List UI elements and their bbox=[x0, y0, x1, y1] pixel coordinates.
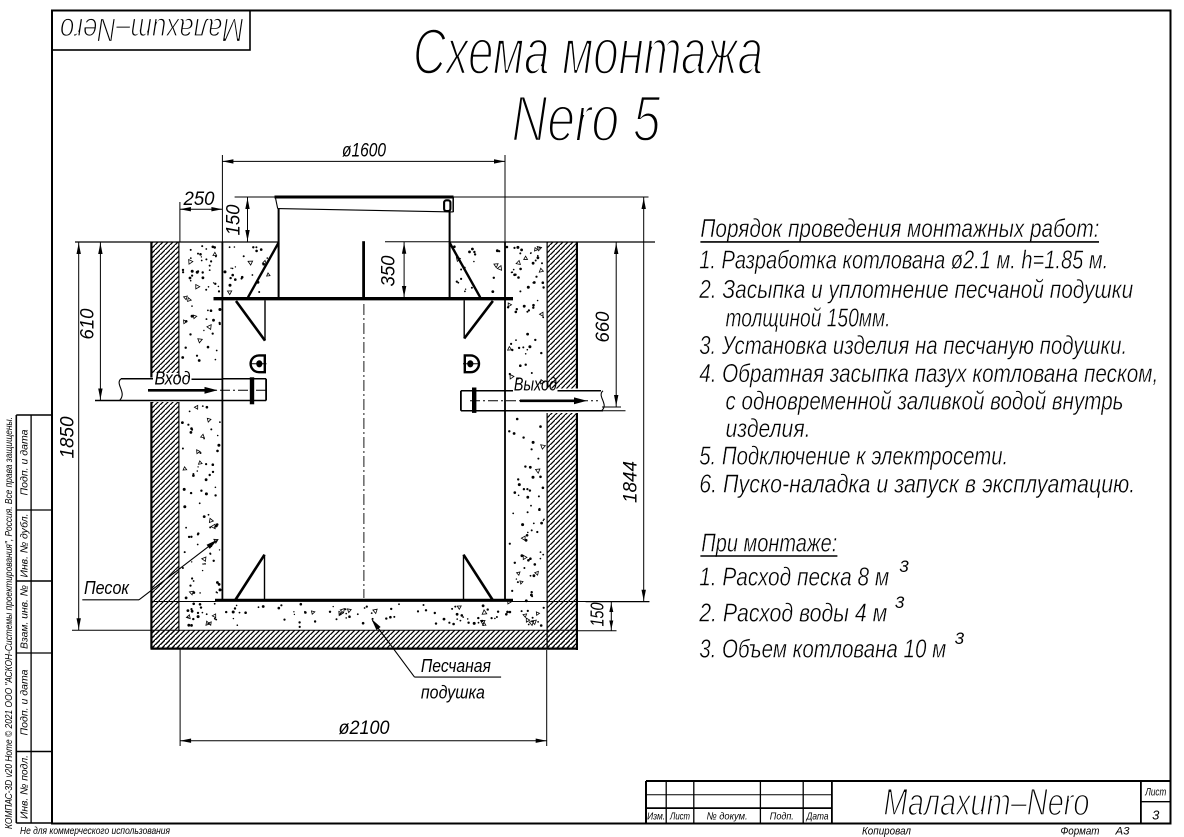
svg-text:3. Объем котлована 10 м: 3. Объем котлована 10 м bbox=[699, 634, 946, 664]
svg-text:3: 3 bbox=[1152, 808, 1160, 823]
svg-text:Песчаная: Песчаная bbox=[421, 655, 491, 676]
svg-text:№ докум.: № докум. bbox=[707, 811, 748, 823]
svg-text:Вход: Вход bbox=[155, 368, 191, 389]
svg-text:150: 150 bbox=[222, 204, 244, 235]
svg-text:подушка: подушка bbox=[421, 682, 485, 703]
svg-text:Копировал: Копировал bbox=[862, 826, 911, 837]
svg-text:Схема монтажа: Схема монтажа bbox=[413, 15, 763, 88]
svg-text:2. Расход воды 4 м: 2. Расход воды 4 м bbox=[698, 598, 887, 628]
svg-text:Лист: Лист bbox=[1145, 787, 1167, 799]
svg-text:250: 250 bbox=[183, 188, 215, 210]
svg-text:толщиной 150мм.: толщиной 150мм. bbox=[726, 303, 891, 333]
svg-text:350: 350 bbox=[377, 255, 399, 286]
svg-text:4. Обратная засыпка пазух кот: 4. Обратная засыпка пазух котлована песк… bbox=[699, 358, 1158, 388]
svg-text:3: 3 bbox=[895, 593, 905, 612]
svg-text:2. Засыпка и уплотнение песча: 2. Засыпка и уплотнение песчаной подушки bbox=[698, 274, 1133, 304]
svg-text:1850: 1850 bbox=[56, 416, 78, 458]
svg-text:3. Установка изделия на песча: 3. Установка изделия на песчаную подушки… bbox=[699, 330, 1127, 360]
svg-text:ø1600: ø1600 bbox=[342, 140, 386, 162]
svg-text:Инв. № дубл.: Инв. № дубл. bbox=[19, 514, 31, 578]
svg-text:Взам. инв. №: Взам. инв. № bbox=[19, 585, 31, 649]
svg-text:КОМПАС-3D v20 Home © 2021 ООО: КОМПАС-3D v20 Home © 2021 ООО "АСКОН-Сис… bbox=[4, 417, 15, 829]
svg-text:5. Подключение к электросети.: 5. Подключение к электросети. bbox=[699, 441, 1008, 471]
svg-text:1. Разработка котлована ø2.1: 1. Разработка котлована ø2.1 м. h=1.85 м… bbox=[699, 245, 1108, 275]
svg-text:3: 3 bbox=[899, 557, 909, 576]
svg-text:изделия.: изделия. bbox=[726, 413, 811, 443]
svg-text:Малахит–Nero: Малахит–Nero bbox=[60, 12, 244, 49]
svg-text:Выход: Выход bbox=[514, 374, 557, 395]
svg-text:660: 660 bbox=[592, 311, 614, 342]
svg-text:Песок: Песок bbox=[84, 577, 130, 598]
svg-text:1. Расход песка 8 м: 1. Расход песка 8 м bbox=[699, 562, 889, 592]
svg-text:Подп. и дата: Подп. и дата bbox=[19, 429, 31, 495]
svg-text:Инв. № подл.: Инв. № подл. bbox=[19, 755, 31, 819]
svg-text:ø2100: ø2100 bbox=[339, 717, 390, 739]
svg-text:6. Пуско-наладка и запуск в э: 6. Пуско-наладка и запуск в эксплуатацию… bbox=[699, 469, 1135, 499]
svg-text:Nero 5: Nero 5 bbox=[512, 82, 662, 155]
svg-text:Дата: Дата bbox=[806, 811, 829, 823]
svg-text:Порядок проведения монтажных р: Порядок проведения монтажных работ: bbox=[700, 213, 1099, 243]
svg-text:При монтаже:: При монтаже: bbox=[701, 528, 837, 558]
svg-text:610: 610 bbox=[76, 308, 98, 339]
svg-text:Подп.: Подп. bbox=[770, 811, 794, 823]
svg-text:Подп. и дата: Подп. и дата bbox=[19, 669, 31, 735]
svg-text:Формат: Формат bbox=[1061, 826, 1100, 837]
svg-text:Лист: Лист bbox=[669, 811, 690, 823]
svg-text:с одновременной заливкой водой: с одновременной заливкой водой внутрь bbox=[726, 386, 1124, 416]
svg-text:Малахит–Nero: Малахит–Nero bbox=[884, 782, 1090, 824]
svg-text:Не для коммерческого использов: Не для коммерческого использования bbox=[20, 825, 170, 837]
svg-text:1844: 1844 bbox=[619, 461, 641, 503]
svg-text:150: 150 bbox=[587, 603, 607, 627]
svg-text:А3: А3 bbox=[1114, 826, 1130, 837]
svg-text:3: 3 bbox=[955, 629, 965, 648]
svg-text:Изм.: Изм. bbox=[647, 811, 665, 823]
